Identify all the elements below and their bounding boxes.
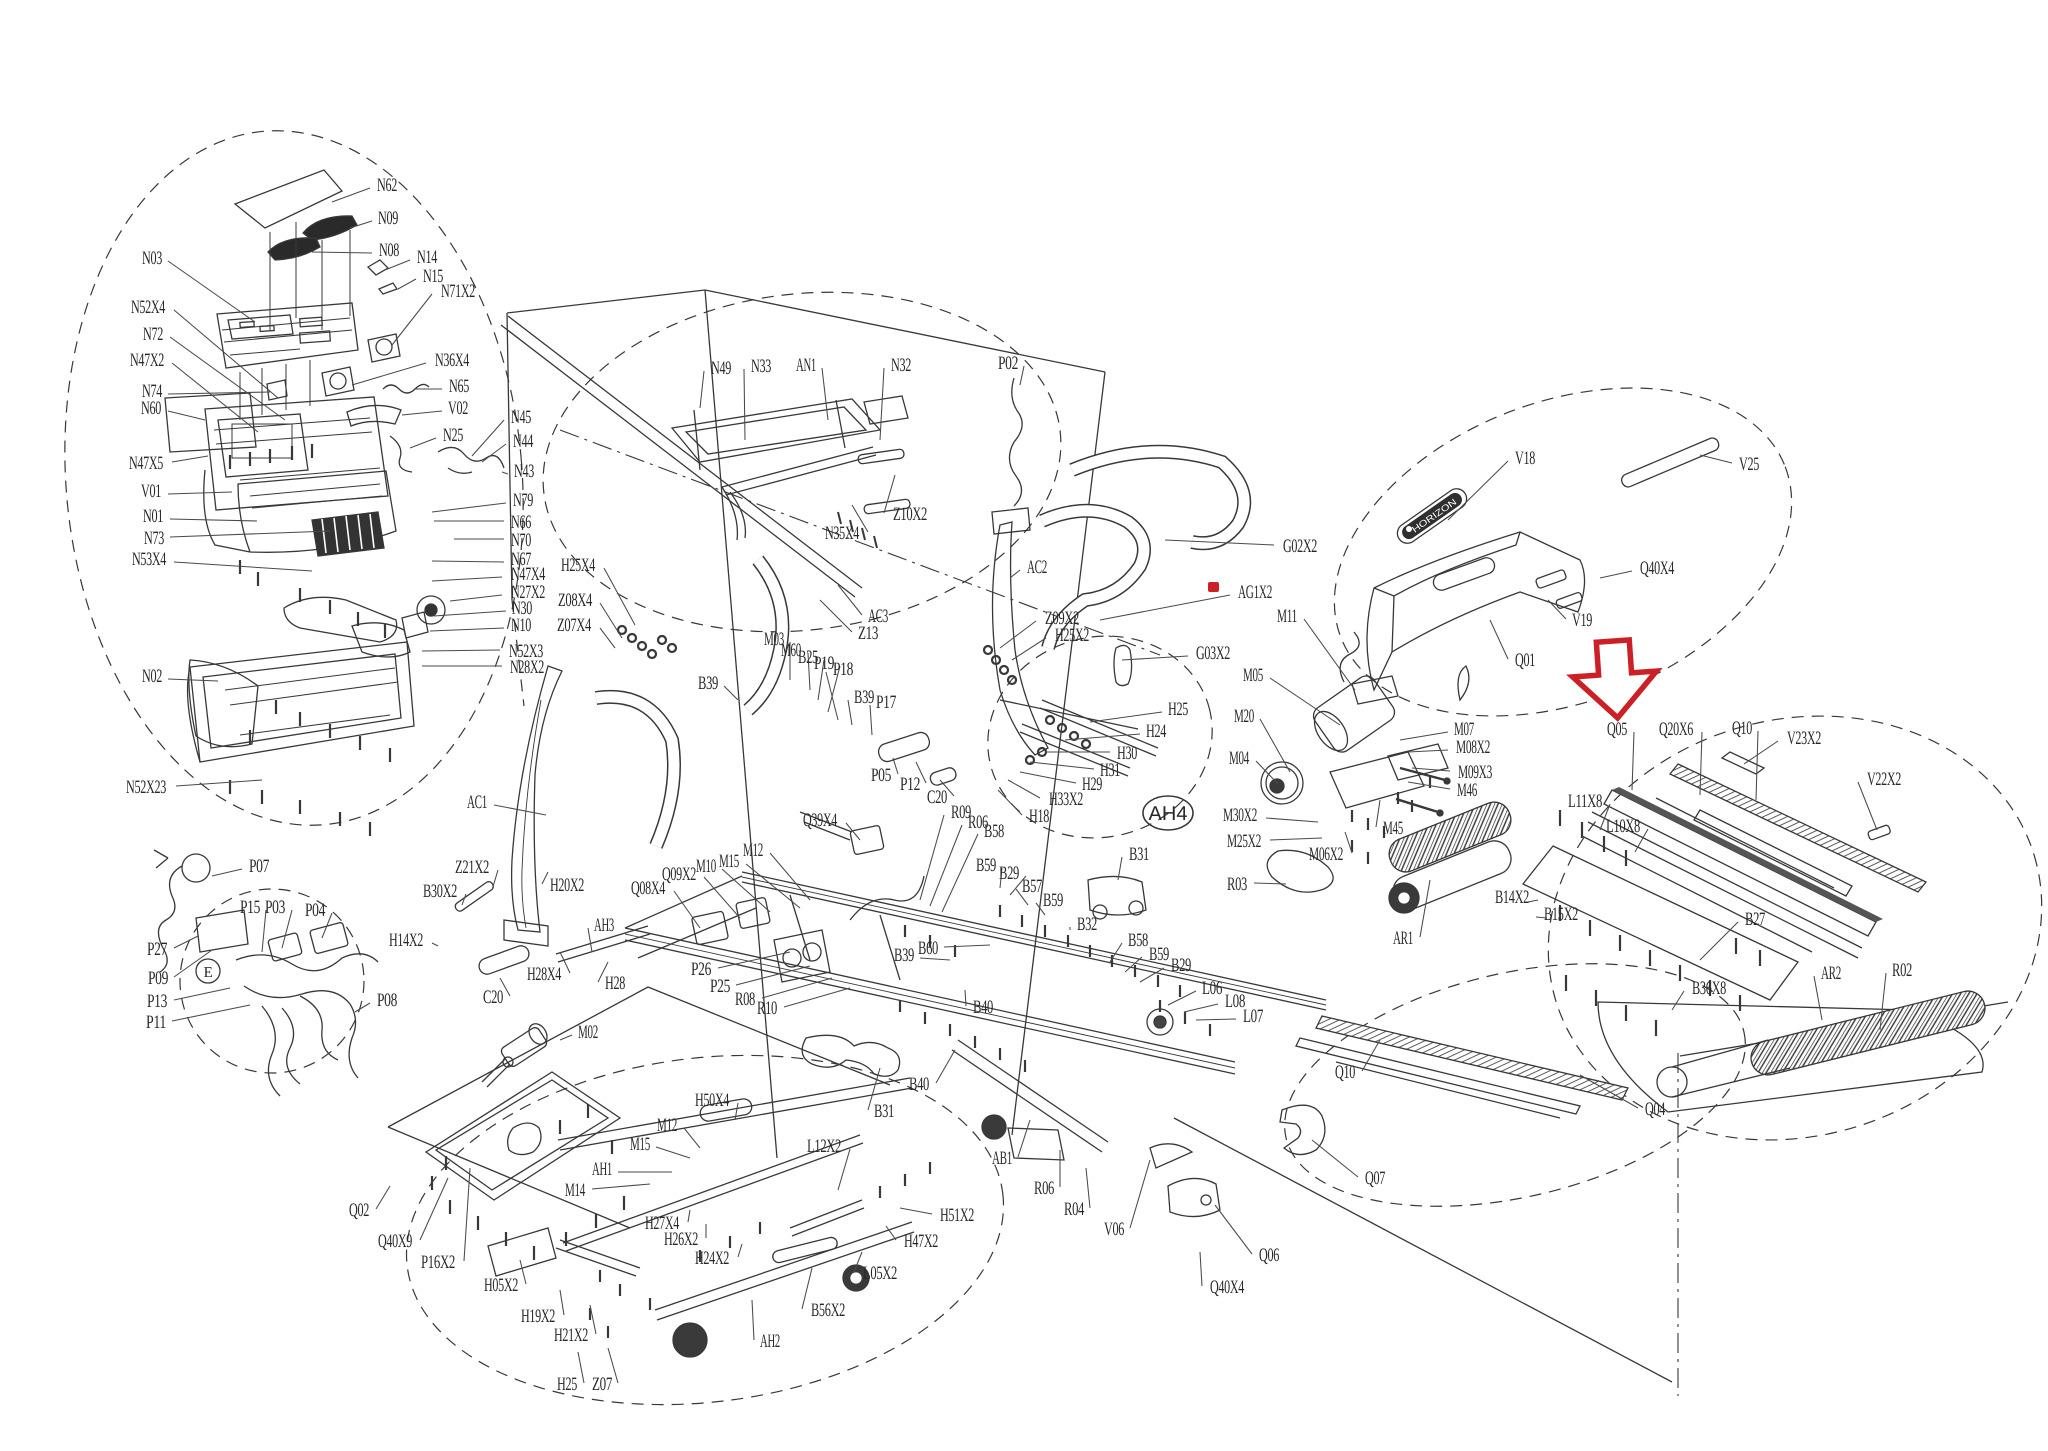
svg-text:B30X2: B30X2 — [423, 881, 457, 902]
svg-text:E: E — [204, 965, 213, 981]
svg-text:B59: B59 — [1149, 944, 1169, 965]
svg-text:AG1X2: AG1X2 — [1238, 582, 1272, 603]
svg-text:Z08X4: Z08X4 — [558, 590, 593, 611]
svg-text:H20X2: H20X2 — [550, 875, 584, 896]
svg-text:B36X8: B36X8 — [1692, 978, 1726, 999]
svg-text:N52X23: N52X23 — [126, 777, 166, 798]
svg-text:R10: R10 — [757, 998, 777, 1019]
svg-text:L10X8: L10X8 — [1606, 816, 1640, 837]
svg-text:H25: H25 — [557, 1374, 577, 1395]
svg-text:M05: M05 — [1243, 665, 1263, 686]
svg-text:B40: B40 — [909, 1074, 929, 1095]
svg-text:B58: B58 — [1128, 930, 1148, 951]
svg-text:M10: M10 — [696, 856, 716, 877]
svg-text:R06: R06 — [1034, 1178, 1054, 1199]
svg-text:N03: N03 — [142, 248, 162, 269]
svg-text:P17: P17 — [876, 692, 896, 713]
svg-text:M14: M14 — [565, 1180, 586, 1201]
svg-text:P13: P13 — [147, 991, 167, 1012]
svg-text:B29: B29 — [1171, 955, 1191, 976]
svg-text:Q40X9: Q40X9 — [378, 1231, 412, 1252]
svg-text:P07: P07 — [249, 856, 269, 877]
svg-text:N79: N79 — [513, 490, 533, 511]
svg-text:H50X4: H50X4 — [695, 1090, 730, 1111]
svg-text:C20: C20 — [483, 987, 503, 1008]
svg-text:M25X2: M25X2 — [1227, 831, 1261, 852]
svg-text:G03X2: G03X2 — [1196, 643, 1230, 664]
svg-text:R03: R03 — [1227, 874, 1247, 895]
svg-text:B29: B29 — [999, 863, 1019, 884]
svg-text:P05: P05 — [871, 765, 891, 786]
svg-text:N71X2: N71X2 — [441, 281, 475, 302]
svg-text:L12X2: L12X2 — [807, 1136, 841, 1157]
svg-text:L08: L08 — [1225, 991, 1245, 1012]
svg-text:N65: N65 — [449, 376, 469, 397]
svg-text:N73: N73 — [144, 528, 164, 549]
svg-text:V22X2: V22X2 — [1867, 769, 1901, 790]
svg-text:P02: P02 — [998, 353, 1018, 374]
svg-text:B31: B31 — [874, 1101, 894, 1122]
svg-text:C20: C20 — [927, 787, 947, 808]
svg-text:N52X4: N52X4 — [131, 297, 166, 318]
svg-text:AH2: AH2 — [760, 1331, 780, 1352]
svg-text:V25: V25 — [1739, 454, 1759, 475]
svg-text:AC2: AC2 — [1027, 557, 1047, 578]
svg-text:H30: H30 — [1117, 743, 1137, 764]
svg-text:M02: M02 — [578, 1022, 598, 1043]
svg-text:N09: N09 — [378, 208, 398, 229]
svg-text:H25X2: H25X2 — [1055, 625, 1089, 646]
svg-text:Q09X2: Q09X2 — [662, 864, 696, 885]
svg-text:AB1: AB1 — [992, 1148, 1012, 1169]
svg-text:V23X2: V23X2 — [1787, 728, 1821, 749]
svg-text:B14X2: B14X2 — [1495, 887, 1529, 908]
svg-text:M06X2: M06X2 — [1309, 844, 1343, 865]
svg-text:M15: M15 — [630, 1134, 650, 1155]
svg-text:L11X8: L11X8 — [1568, 791, 1602, 812]
svg-text:L06: L06 — [1202, 978, 1222, 999]
svg-text:M08X2: M08X2 — [1456, 737, 1490, 758]
svg-text:H31: H31 — [1100, 760, 1120, 781]
svg-text:H47X2: H47X2 — [904, 1231, 938, 1252]
svg-text:H21X2: H21X2 — [554, 1325, 588, 1346]
svg-text:Q04: Q04 — [1645, 1099, 1666, 1120]
svg-text:B32: B32 — [1077, 914, 1097, 935]
svg-text:M12: M12 — [743, 840, 763, 861]
svg-text:B56X2: B56X2 — [811, 1300, 845, 1321]
svg-text:Z07: Z07 — [592, 1374, 612, 1395]
svg-text:N01: N01 — [143, 506, 163, 527]
svg-text:B27: B27 — [1745, 909, 1765, 930]
svg-text:N14: N14 — [417, 247, 438, 268]
svg-text:N43: N43 — [514, 461, 534, 482]
svg-text:H29: H29 — [1082, 774, 1102, 795]
svg-text:P16X2: P16X2 — [421, 1252, 455, 1273]
svg-text:H14X2: H14X2 — [389, 930, 423, 951]
svg-text:N36X4: N36X4 — [435, 350, 470, 371]
svg-text:P04: P04 — [305, 900, 326, 921]
svg-text:P11: P11 — [146, 1012, 166, 1033]
svg-text:B40: B40 — [973, 997, 993, 1018]
svg-text:H18: H18 — [1029, 806, 1049, 827]
svg-text:V18: V18 — [1515, 448, 1535, 469]
svg-text:B39: B39 — [894, 945, 914, 966]
svg-text:B15X2: B15X2 — [1544, 904, 1578, 925]
svg-text:M20: M20 — [1234, 706, 1254, 727]
svg-text:N28X2: N28X2 — [510, 657, 544, 678]
svg-text:P27: P27 — [147, 939, 167, 960]
svg-text:Q10: Q10 — [1335, 1062, 1355, 1083]
svg-text:Q10: Q10 — [1732, 718, 1752, 739]
svg-text:AN1: AN1 — [796, 355, 816, 376]
svg-text:H28X4: H28X4 — [527, 964, 562, 985]
svg-text:H25: H25 — [1168, 699, 1188, 720]
svg-text:N15: N15 — [423, 266, 443, 287]
svg-text:N35X4: N35X4 — [825, 523, 860, 544]
svg-text:B60: B60 — [918, 938, 938, 959]
svg-text:M30X2: M30X2 — [1223, 805, 1257, 826]
svg-text:H51X2: H51X2 — [940, 1205, 974, 1226]
svg-text:Z07X4: Z07X4 — [557, 615, 592, 636]
svg-text:H19X2: H19X2 — [521, 1306, 555, 1327]
svg-text:N53X4: N53X4 — [132, 549, 167, 570]
svg-text:V02: V02 — [448, 398, 468, 419]
svg-text:P25: P25 — [710, 976, 730, 997]
svg-text:P09: P09 — [148, 968, 168, 989]
svg-text:V01: V01 — [141, 481, 161, 502]
svg-text:N47X2: N47X2 — [130, 350, 164, 371]
svg-text:Z21X2: Z21X2 — [455, 857, 489, 878]
svg-text:N25: N25 — [443, 425, 463, 446]
svg-text:N44: N44 — [513, 431, 534, 452]
svg-text:N62: N62 — [377, 175, 397, 196]
svg-text:L05X2: L05X2 — [863, 1263, 897, 1284]
svg-text:Z10X2: Z10X2 — [893, 504, 927, 525]
svg-text:AH1: AH1 — [592, 1159, 612, 1180]
svg-text:P12: P12 — [900, 774, 920, 795]
svg-text:M45: M45 — [1383, 818, 1403, 839]
svg-text:Q40X4: Q40X4 — [1210, 1277, 1245, 1298]
svg-text:P26: P26 — [691, 959, 711, 980]
svg-text:M04: M04 — [1229, 748, 1250, 769]
svg-text:V06: V06 — [1104, 1219, 1124, 1240]
svg-text:G02X2: G02X2 — [1283, 536, 1317, 557]
svg-text:B59: B59 — [1043, 890, 1063, 911]
svg-text:Q01: Q01 — [1515, 650, 1535, 671]
svg-text:H33X2: H33X2 — [1049, 789, 1083, 810]
svg-text:P03: P03 — [265, 897, 285, 918]
svg-text:Z13: Z13 — [858, 623, 878, 644]
svg-text:H28: H28 — [605, 973, 625, 994]
svg-text:P18: P18 — [833, 659, 853, 680]
svg-text:M15: M15 — [719, 851, 739, 872]
svg-text:P19: P19 — [814, 653, 834, 674]
svg-text:N08: N08 — [379, 240, 399, 261]
svg-text:N60: N60 — [141, 398, 161, 419]
svg-text:B39: B39 — [854, 687, 874, 708]
svg-text:N45: N45 — [511, 407, 531, 428]
svg-text:H05X2: H05X2 — [484, 1275, 518, 1296]
svg-text:Q05: Q05 — [1607, 719, 1627, 740]
svg-text:Q02: Q02 — [349, 1200, 369, 1221]
svg-text:AR1: AR1 — [1393, 928, 1413, 949]
svg-text:M12: M12 — [657, 1115, 677, 1136]
svg-text:M46: M46 — [1457, 780, 1477, 801]
svg-text:M11: M11 — [1277, 606, 1297, 627]
svg-text:N10: N10 — [511, 615, 531, 636]
svg-text:B39: B39 — [698, 673, 718, 694]
svg-text:Q40X4: Q40X4 — [1640, 558, 1675, 579]
svg-text:R04: R04 — [1064, 1199, 1085, 1220]
svg-text:N47X5: N47X5 — [129, 453, 163, 474]
svg-text:AH3: AH3 — [594, 915, 614, 936]
svg-text:Q07: Q07 — [1365, 1168, 1385, 1189]
svg-text:V19: V19 — [1572, 610, 1592, 631]
svg-text:N70: N70 — [511, 530, 531, 551]
svg-text:R02: R02 — [1892, 960, 1912, 981]
svg-text:H24: H24 — [1146, 721, 1167, 742]
svg-text:B58: B58 — [984, 821, 1004, 842]
svg-text:N32: N32 — [891, 355, 911, 376]
svg-text:L07: L07 — [1243, 1006, 1263, 1027]
svg-text:N49: N49 — [711, 358, 731, 379]
svg-text:N33: N33 — [751, 356, 771, 377]
svg-text:Q39X4: Q39X4 — [803, 810, 838, 831]
svg-text:Q06: Q06 — [1259, 1245, 1279, 1266]
svg-text:N02: N02 — [142, 666, 162, 687]
svg-text:AR2: AR2 — [1821, 963, 1841, 984]
svg-text:P15: P15 — [240, 897, 260, 918]
svg-text:H24X2: H24X2 — [695, 1248, 729, 1269]
svg-text:H26X2: H26X2 — [664, 1229, 698, 1250]
svg-text:H25X4: H25X4 — [561, 555, 596, 576]
svg-text:B57: B57 — [1022, 876, 1042, 897]
svg-text:R08: R08 — [735, 989, 755, 1010]
svg-text:P08: P08 — [377, 990, 397, 1011]
svg-text:Q08X4: Q08X4 — [631, 878, 666, 899]
svg-text:Q20X6: Q20X6 — [1659, 719, 1693, 740]
svg-text:N72: N72 — [143, 324, 163, 345]
svg-text:AC1: AC1 — [467, 792, 487, 813]
svg-text:B31: B31 — [1129, 844, 1149, 865]
svg-text:B59: B59 — [976, 855, 996, 876]
svg-text:AH4: AH4 — [1149, 803, 1188, 825]
